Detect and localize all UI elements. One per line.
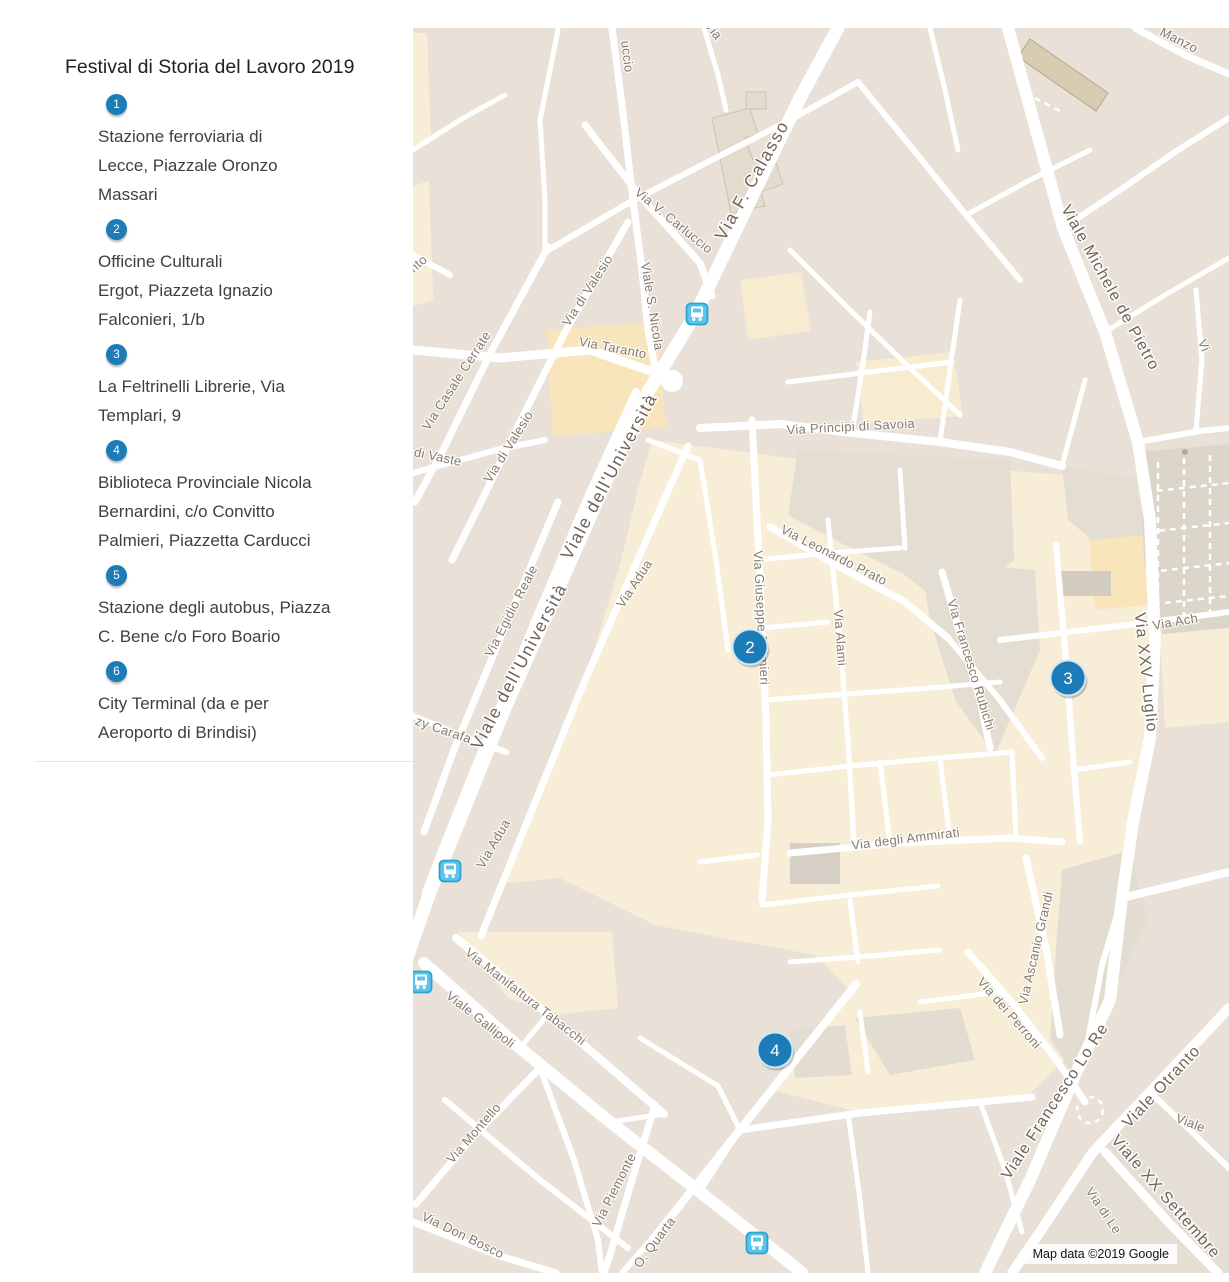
marker-chip-2: 2 <box>106 219 127 240</box>
marker-chip-4: 4 <box>106 440 127 461</box>
legend-item-5[interactable]: 5Stazione degli autobus, PiazzaC. Bene c… <box>98 565 413 651</box>
legend-item-text: Stazione degli autobus, PiazzaC. Bene c/… <box>98 593 413 651</box>
legend-item-4[interactable]: 4Biblioteca Provinciale NicolaBernardini… <box>98 440 413 555</box>
marker-chip-6: 6 <box>106 661 127 682</box>
bus-stop-icon[interactable] <box>440 861 461 882</box>
legend-item-text: Stazione ferroviaria diLecce, Piazzale O… <box>98 122 413 209</box>
legend-items: 1Stazione ferroviaria diLecce, Piazzale … <box>98 94 413 747</box>
map-attribution: Map data ©2019 Google <box>1025 1244 1177 1264</box>
legend-divider <box>35 761 413 762</box>
legend-item-6[interactable]: 6City Terminal (da e perAeroporto di Bri… <box>98 661 413 747</box>
legend-title: Festival di Storia del Lavoro 2019 <box>65 54 413 80</box>
legend-item-text: City Terminal (da e perAeroporto di Brin… <box>98 689 413 747</box>
legend-item-3[interactable]: 3La Feltrinelli Librerie, ViaTemplari, 9 <box>98 344 413 430</box>
bus-stop-icon[interactable] <box>747 1233 768 1254</box>
marker-number: 3 <box>1063 669 1072 688</box>
marker-chip-3: 3 <box>106 344 127 365</box>
legend-item-2[interactable]: 2Officine CulturaliErgot, Piazzeta Ignaz… <box>98 219 413 334</box>
legend-item-text: Biblioteca Provinciale NicolaBernardini,… <box>98 468 413 555</box>
legend-item-text: La Feltrinelli Librerie, ViaTemplari, 9 <box>98 372 413 430</box>
marker-number: 4 <box>770 1041 779 1060</box>
roundabout <box>661 370 683 392</box>
map-canvas[interactable]: Via F. CalassoViale dell'UniversitàViale… <box>413 28 1229 1273</box>
legend-item-text: Officine CulturaliErgot, Piazzeta Ignazi… <box>98 247 413 334</box>
bus-stop-icon[interactable] <box>687 304 708 325</box>
bus-stop-icon[interactable] <box>413 972 432 993</box>
marker-number: 2 <box>745 638 754 657</box>
marker-chip-5: 5 <box>106 565 127 586</box>
marker-chip-1: 1 <box>106 94 127 115</box>
legend-sidebar: Festival di Storia del Lavoro 2019 1Staz… <box>0 0 413 762</box>
legend-item-1[interactable]: 1Stazione ferroviaria diLecce, Piazzale … <box>98 94 413 209</box>
